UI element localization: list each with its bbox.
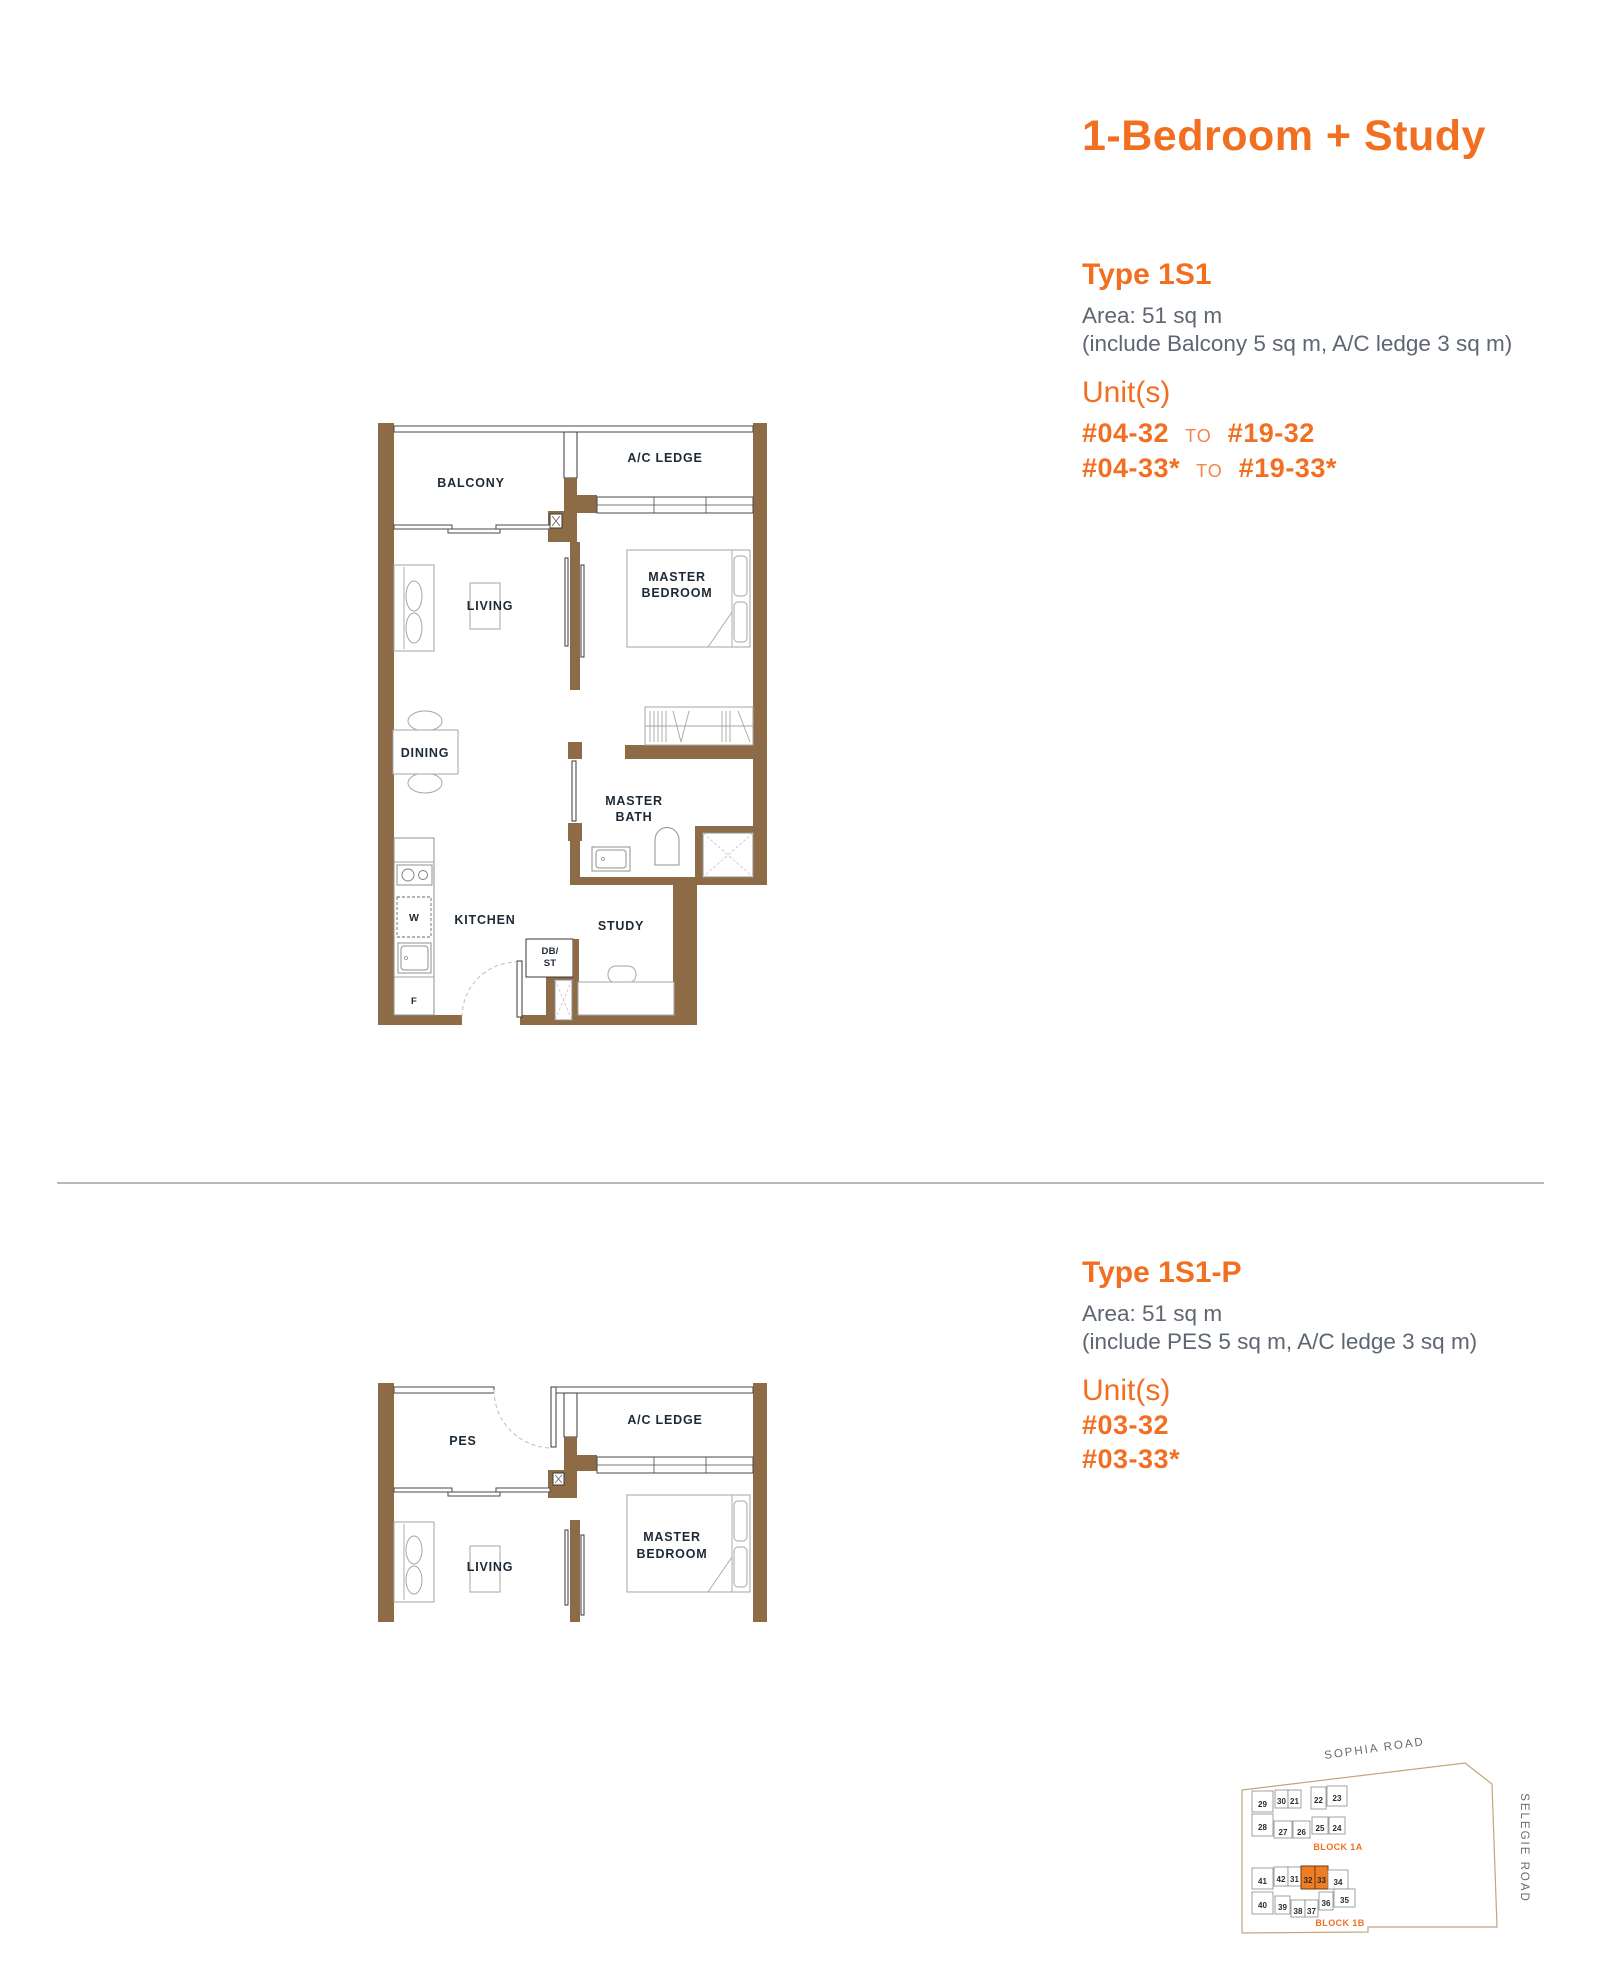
type-1s1p-area-line2: (include PES 5 sq m, A/C ledge 3 sq m) <box>1082 1329 1477 1355</box>
brochure-page: 1-Bedroom + Study Type 1S1 Area: 51 sq m… <box>0 0 1600 1976</box>
master-bath-label-line1: MASTER <box>605 794 663 808</box>
type-1s1p-units-heading: Unit(s) <box>1082 1374 1170 1408</box>
svg-text:42: 42 <box>1277 1875 1286 1884</box>
svg-text:39: 39 <box>1278 1903 1287 1912</box>
site-unit: 30 <box>1275 1790 1288 1808</box>
master-bedroom-label-line2: BEDROOM <box>642 586 713 600</box>
svg-text:29: 29 <box>1258 1800 1267 1809</box>
type-1s1-area-line1: Area: 51 sq m <box>1082 303 1222 329</box>
unit-number: #04-33* <box>1082 453 1180 484</box>
floorplan-type-1s1-p: PES A/C LEDGE LIVING MASTER BEDROOM <box>370 1370 770 1625</box>
unit-number: #03-33* <box>1082 1444 1180 1475</box>
study-desk-icon <box>578 966 674 1015</box>
master-bedroom-label-line1: MASTER <box>643 1530 701 1544</box>
type-1s1-heading: Type 1S1 <box>1082 258 1212 292</box>
site-unit: 34 <box>1328 1870 1348 1889</box>
toilet-icon <box>655 828 679 866</box>
type-1s1p-heading: Type 1S1-P <box>1082 1256 1242 1290</box>
svg-text:34: 34 <box>1334 1878 1343 1887</box>
page-title: 1-Bedroom + Study <box>1082 112 1486 161</box>
site-unit: 31 <box>1288 1867 1301 1886</box>
site-unit: 28 <box>1252 1814 1273 1836</box>
kitchen-counter-icon <box>394 838 434 1015</box>
pes-door-icon <box>494 1390 552 1448</box>
site-unit: 39 <box>1275 1896 1290 1914</box>
ac-ledge-louver-window <box>597 1457 753 1473</box>
entrance-door-icon <box>462 961 522 1017</box>
master-bedroom-label-line1: MASTER <box>648 570 706 584</box>
svg-text:25: 25 <box>1316 1824 1325 1833</box>
site-unit: 42 <box>1274 1867 1288 1886</box>
db-st-label-line2: ST <box>544 958 557 969</box>
type-1s1-unit-row-2: #04-33* TO #19-33* <box>1082 453 1337 484</box>
wardrobe-icon <box>645 707 753 745</box>
svg-text:35: 35 <box>1340 1896 1349 1905</box>
svg-text:23: 23 <box>1333 1794 1342 1803</box>
ac-ledge-louver-window <box>597 497 753 513</box>
unit-number: #19-32 <box>1228 418 1315 449</box>
unit-number: #19-33* <box>1239 453 1337 484</box>
site-unit: 40 <box>1252 1892 1273 1914</box>
ac-ledge-label: A/C LEDGE <box>627 1413 702 1427</box>
site-unit: 37 <box>1305 1900 1318 1917</box>
unit-number: #04-32 <box>1082 418 1169 449</box>
balcony-label: BALCONY <box>437 476 504 490</box>
svg-text:30: 30 <box>1277 1797 1286 1806</box>
type-1s1-area-line2: (include Balcony 5 sq m, A/C ledge 3 sq … <box>1082 331 1512 357</box>
block-1b: 41 42 31 32 33 34 40 39 38 37 36 35 BLOC… <box>1252 1866 1365 1928</box>
svg-text:28: 28 <box>1258 1823 1267 1832</box>
floorplan-type-1s1: BALCONY A/C LEDGE LIVING MASTER BEDROOM … <box>370 415 770 1035</box>
kitchen-label: KITCHEN <box>454 913 515 927</box>
site-unit: 26 <box>1293 1821 1310 1838</box>
svg-text:27: 27 <box>1279 1828 1288 1837</box>
svg-text:37: 37 <box>1307 1907 1316 1916</box>
svg-text:24: 24 <box>1333 1824 1342 1833</box>
kitchen-sink-icon <box>398 943 431 973</box>
type-1s1p-unit-row-1: #03-32 <box>1082 1410 1169 1441</box>
site-map: SOPHIA ROAD SELEGIE ROAD 29 30 21 22 23 … <box>1230 1690 1550 1950</box>
sofa-icon <box>394 1522 434 1602</box>
block-1a-label: BLOCK 1A <box>1313 1842 1362 1852</box>
site-unit: 29 <box>1252 1791 1273 1812</box>
site-unit: 38 <box>1291 1900 1305 1917</box>
shower-icon <box>703 833 753 877</box>
study-label: STUDY <box>598 919 644 933</box>
svg-text:21: 21 <box>1290 1797 1299 1806</box>
site-unit: 22 <box>1311 1787 1326 1809</box>
unit-range-to: TO <box>1185 426 1212 447</box>
dining-label: DINING <box>401 746 450 760</box>
block-1b-label: BLOCK 1B <box>1315 1918 1364 1928</box>
type-1s1-units-heading: Unit(s) <box>1082 376 1170 410</box>
ac-ledge-label: A/C LEDGE <box>627 451 702 465</box>
site-unit: 36 <box>1319 1892 1333 1910</box>
site-unit: 24 <box>1329 1817 1345 1834</box>
section-divider <box>57 1182 1544 1184</box>
svg-text:33: 33 <box>1317 1876 1326 1885</box>
pes-label: PES <box>449 1434 476 1448</box>
svg-text:26: 26 <box>1297 1828 1306 1837</box>
living-label: LIVING <box>467 599 513 613</box>
site-unit: 23 <box>1327 1786 1347 1806</box>
svg-text:36: 36 <box>1322 1899 1331 1908</box>
svg-text:41: 41 <box>1258 1877 1267 1886</box>
sofa-icon <box>394 565 434 651</box>
washer-label: W <box>409 912 419 924</box>
site-unit: 35 <box>1334 1889 1355 1907</box>
living-label: LIVING <box>467 1560 513 1574</box>
bath-sink-icon <box>592 847 630 871</box>
svg-text:22: 22 <box>1314 1796 1323 1805</box>
selegie-road-label: SELEGIE ROAD <box>1518 1793 1530 1903</box>
svg-text:31: 31 <box>1290 1875 1299 1884</box>
master-bath-label-line2: BATH <box>616 810 653 824</box>
db-st-label-line1: DB/ <box>542 946 559 957</box>
svg-text:40: 40 <box>1258 1901 1267 1910</box>
svg-text:38: 38 <box>1294 1907 1303 1916</box>
site-unit-highlighted: 32 <box>1301 1866 1315 1889</box>
type-1s1p-area-line1: Area: 51 sq m <box>1082 1301 1222 1327</box>
stove-icon <box>397 865 432 885</box>
type-1s1p-unit-row-2: #03-33* <box>1082 1444 1180 1475</box>
site-unit: 27 <box>1274 1821 1292 1838</box>
site-unit: 41 <box>1252 1868 1273 1889</box>
master-bedroom-label-line2: BEDROOM <box>637 1547 708 1561</box>
block-1a: 29 30 21 22 23 28 27 26 25 24 BLOCK 1A <box>1252 1786 1363 1852</box>
sophia-road-label: SOPHIA ROAD <box>1324 1736 1426 1762</box>
unit-range-to: TO <box>1196 461 1223 482</box>
fridge-label: F <box>411 996 417 1007</box>
site-unit-highlighted: 33 <box>1315 1866 1328 1889</box>
type-1s1-unit-row-1: #04-32 TO #19-32 <box>1082 418 1315 449</box>
site-unit: 21 <box>1288 1790 1301 1808</box>
unit-number: #03-32 <box>1082 1410 1169 1441</box>
site-unit: 25 <box>1312 1817 1328 1834</box>
svg-text:32: 32 <box>1304 1876 1313 1885</box>
